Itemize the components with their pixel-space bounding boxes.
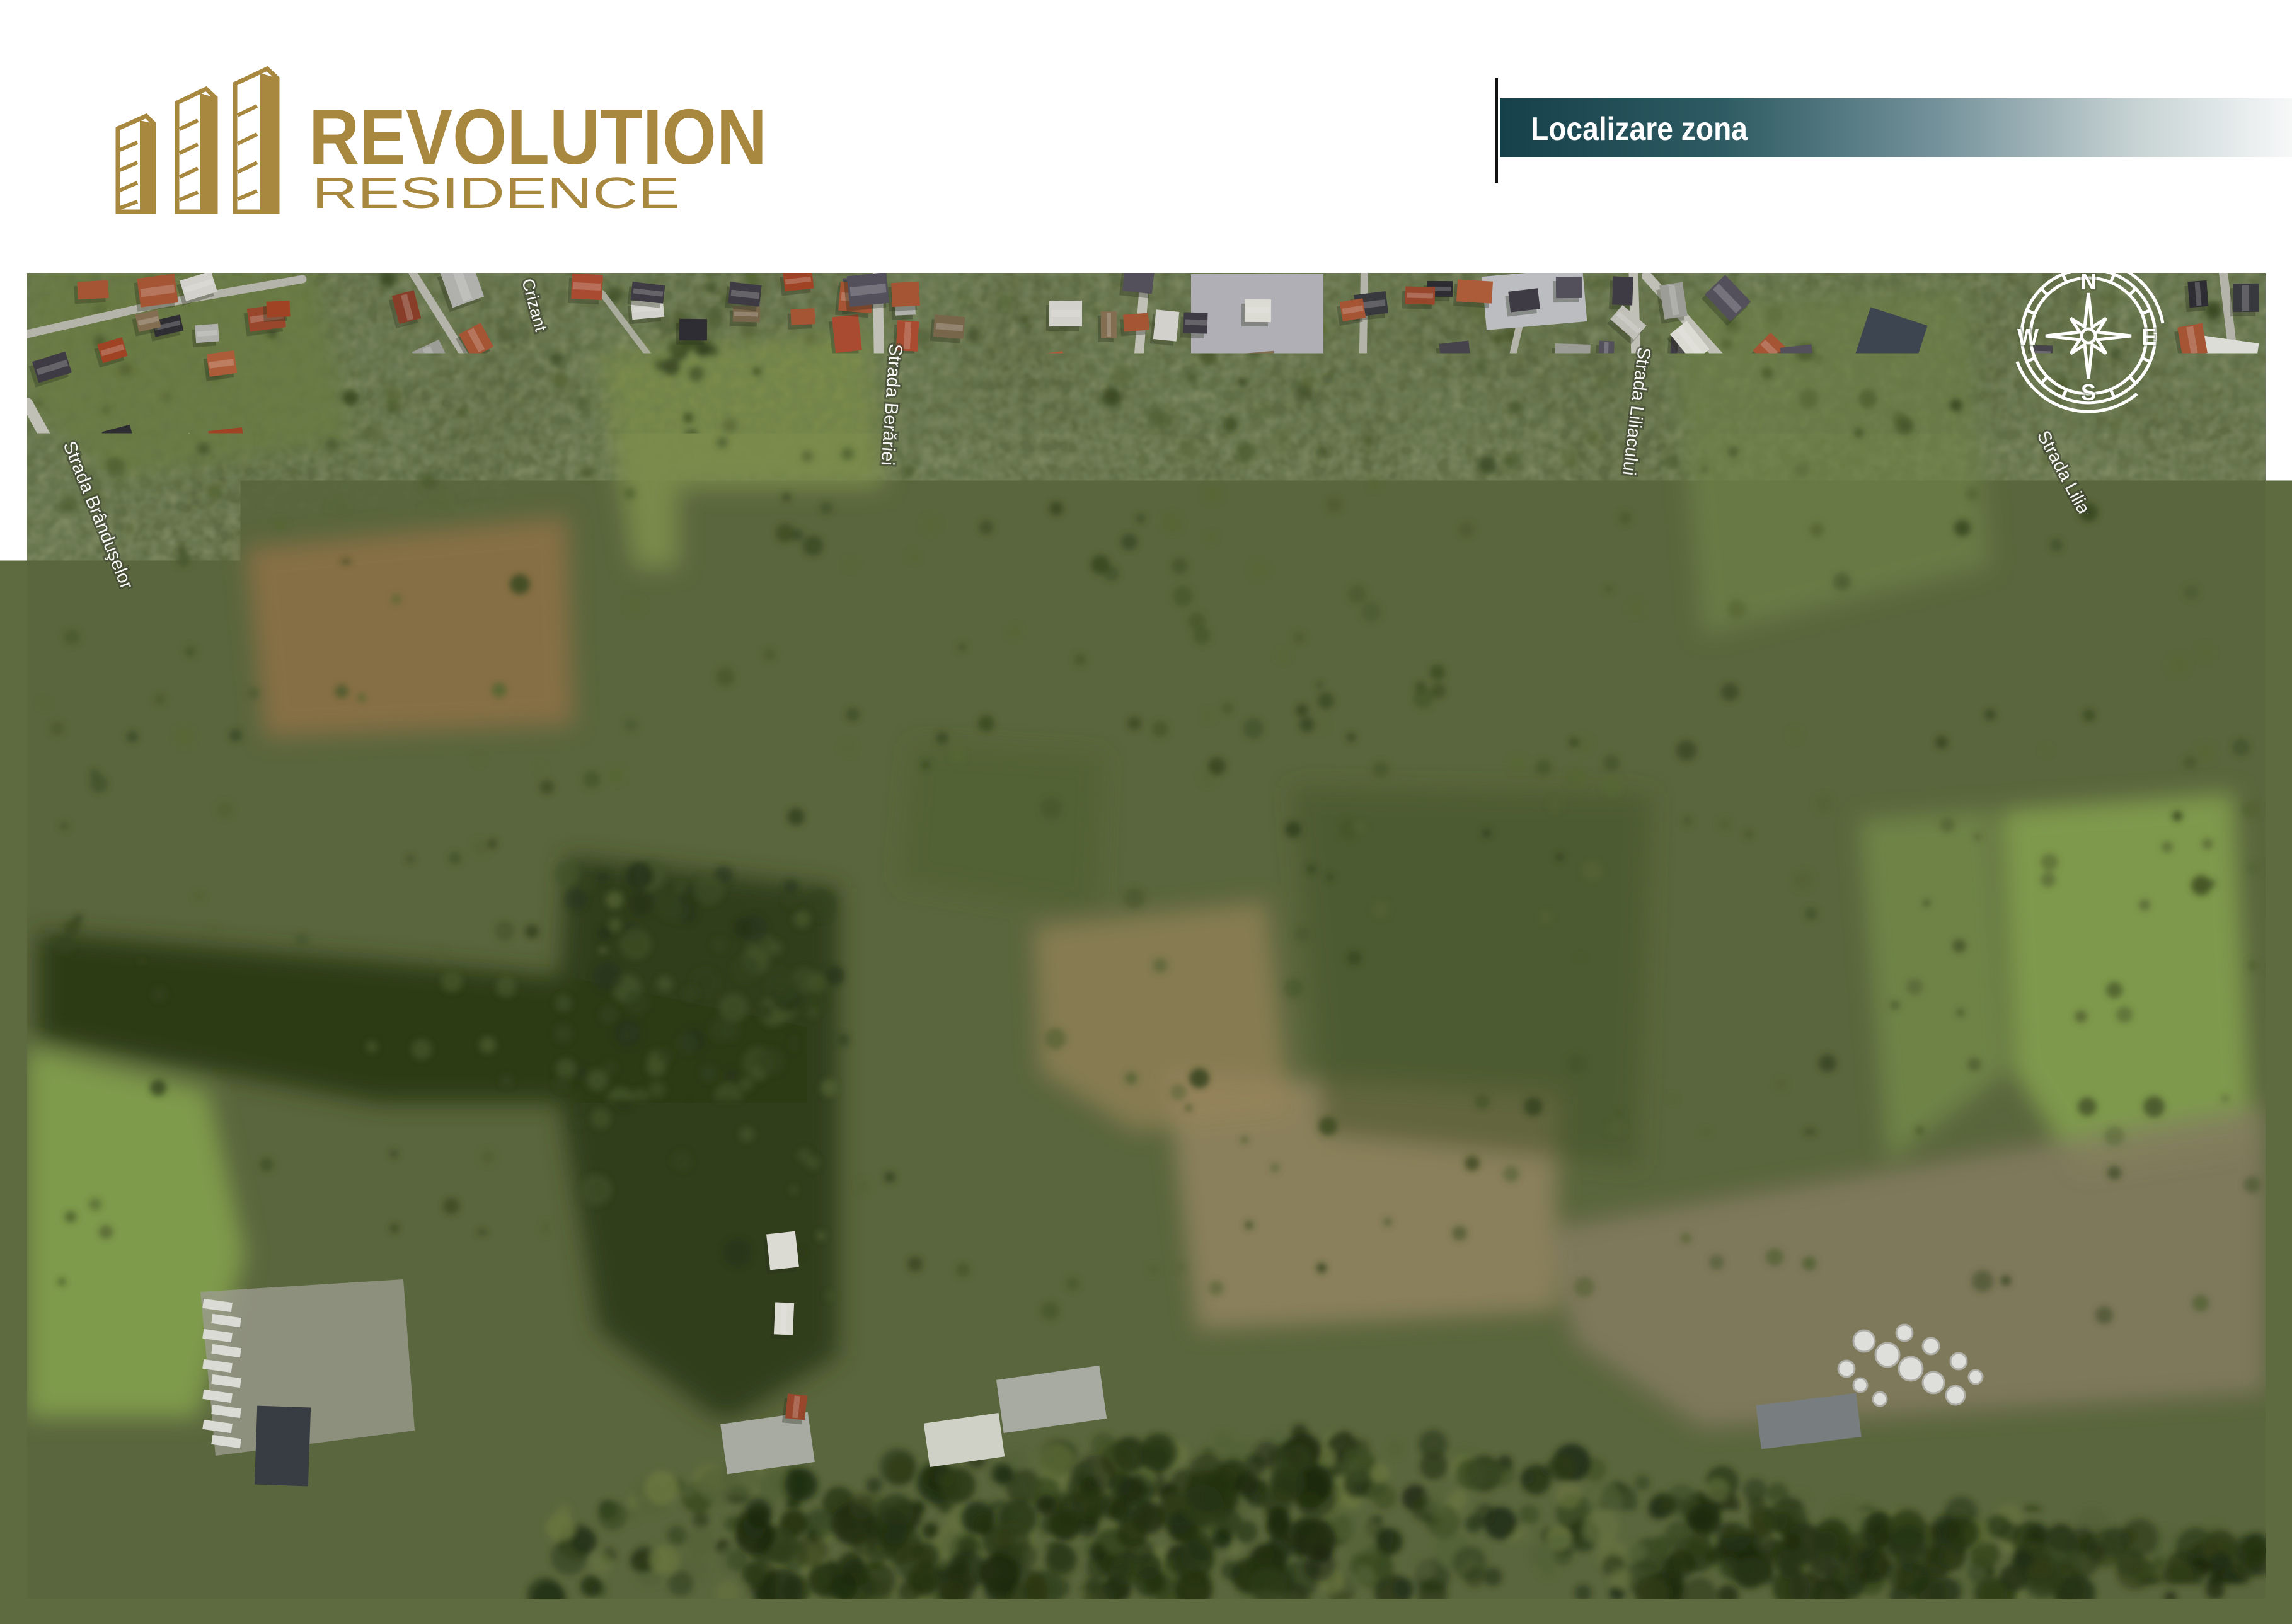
svg-text:1C: 1C — [399, 1374, 418, 1391]
svg-text:E58: E58 — [439, 1534, 466, 1551]
svg-text:Image Landsat / Copernicus: Image Landsat / Copernicus — [1102, 1473, 1313, 1493]
svg-text:1C: 1C — [1435, 1293, 1454, 1310]
svg-text:Tractari Auto / Evacuator Baia: Tractari Auto / Evacuator Baia Mare... — [307, 1047, 621, 1068]
svg-text:Digital Reveal: Digital Reveal — [1751, 849, 1863, 870]
svg-text:Orzac Design - Mobilier la com: Orzac Design - Mobilier la comanda Baia … — [234, 1523, 587, 1541]
svg-text:Etre Belle Cosmetics Romania: Etre Belle Cosmetics Romania — [1730, 1068, 1978, 1088]
svg-text:Habitex: Habitex — [955, 1175, 1019, 1195]
svg-text:S: S — [2081, 379, 2096, 405]
svg-text:47°39'25.18" N 23°31'22.53": 47°39'25.18" N 23°31'22.53" E elev 636 f… — [1838, 1574, 2236, 1594]
svg-text:Localizare zona: Localizare zona — [1531, 111, 1748, 147]
svg-text:Atlantida: Atlantida — [799, 1404, 868, 1424]
svg-text:Silvarom: Silvarom — [547, 1386, 621, 1407]
svg-text:Vivohaus: Vivohaus — [283, 1234, 360, 1255]
svg-text:Agastia Serv: Agastia Serv — [2066, 1248, 2170, 1269]
svg-text:RESIDENCE: RESIDENCE — [312, 168, 680, 217]
svg-text:Google: Google — [2163, 1528, 2292, 1578]
svg-text:E: E — [2141, 324, 2157, 350]
svg-text:W: W — [2017, 324, 2039, 350]
svg-text:STRADA DALIEI, NR 2H,: STRADA DALIEI, NR 2H, — [1251, 1034, 1414, 1058]
svg-text:IMOBIL APARTAMENTE: IMOBIL APARTAMENTE — [1251, 1007, 1406, 1031]
svg-text:Strada Daliei: Strada Daliei — [1106, 814, 1126, 919]
svg-text:Select Auto: Select Auto — [1459, 1317, 1552, 1337]
svg-text:Pisano Grup: Pisano Grup — [1921, 1262, 2022, 1282]
svg-text:Venetia Showroom: Venetia Showroom — [994, 1358, 1143, 1378]
svg-text:N: N — [2080, 268, 2097, 294]
svg-text:1985: 1985 — [63, 1566, 108, 1589]
svg-text:BAIA MARE: BAIA MARE — [1251, 1061, 1327, 1085]
